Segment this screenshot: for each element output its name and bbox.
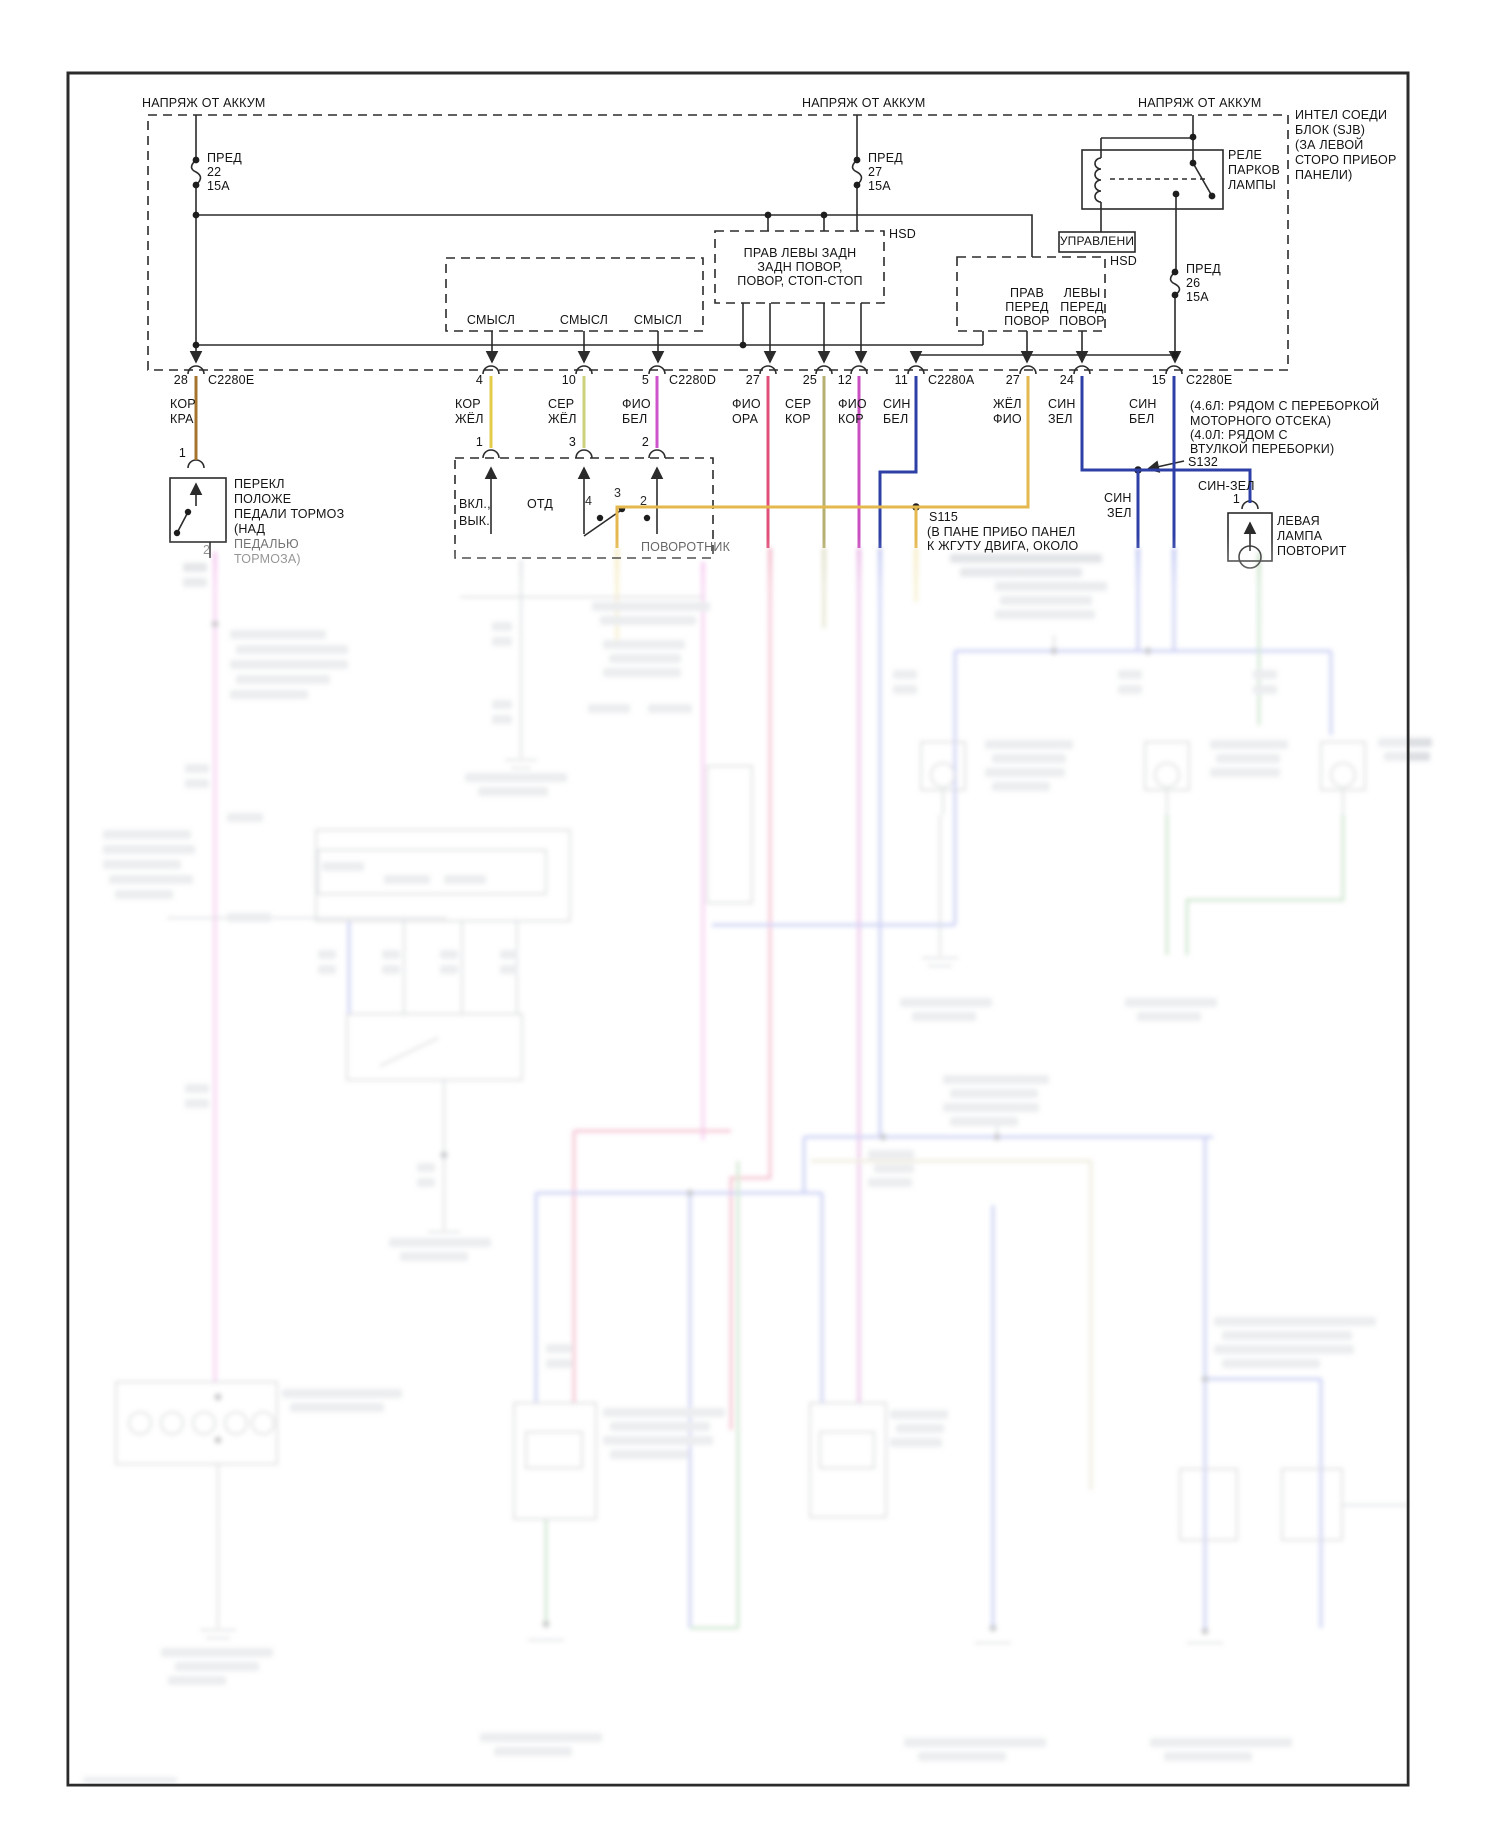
sense-label-2: СМЫСЛ — [560, 314, 608, 327]
wlbl-zhel-fio-2: ФИО — [993, 413, 1022, 426]
sin-zel-stub-1: СИН — [1104, 492, 1132, 505]
turn-contact-4: 4 — [585, 495, 592, 508]
wlbl-fio-kor-1: ФИО — [838, 398, 867, 411]
wlbl-fio-ora-2: ОРА — [732, 413, 758, 426]
lamp-name-3: ПОВТОРИТ — [1277, 545, 1347, 558]
fuse-26-symbol — [1171, 272, 1180, 295]
wlbl-kor-zhel-1: КОР — [455, 398, 481, 411]
hsd1-line-1: ПРАВ ЛЕВЫ ЗАДН — [744, 247, 857, 260]
fuse22-name: ПРЕД — [207, 152, 242, 165]
relay-name-3: ЛАМПЫ — [1228, 179, 1276, 192]
pin-11: 11 — [895, 374, 908, 387]
brake-name-5: ПЕДАЛЬЮ — [234, 538, 299, 551]
lamp-name-2: ЛАМПА — [1277, 530, 1322, 543]
conn-c2280a: C2280A — [928, 374, 974, 387]
sjb-note-4: СТОРО ПРИБОР — [1295, 154, 1397, 167]
hsd1-line-3: ПОВОР, СТОП-СТОП — [737, 275, 862, 288]
fuse22-amp: 15А — [207, 180, 230, 193]
wlbl-sin-zel-1: СИН — [1048, 398, 1076, 411]
wlbl-kor-kra-2: КРА — [170, 413, 194, 426]
hsd2-left-2: ПЕРЕД — [1005, 301, 1048, 314]
wlbl-fio-kor-2: КОР — [838, 413, 864, 426]
wlbl-fio-ora-1: ФИО — [732, 398, 761, 411]
s132-note-2: МОТОРНОГО ОТСЕКА) — [1190, 415, 1331, 428]
wlbl-ser-zhel-1: СЕР — [548, 398, 574, 411]
pin-28: 28 — [174, 374, 188, 387]
fuse27-amp: 15А — [868, 180, 891, 193]
sjb-note-1: ИНТЕЛ СОЕДИ — [1295, 109, 1387, 122]
s132-id: S132 — [1188, 456, 1218, 469]
sense-label-3: СМЫСЛ — [634, 314, 682, 327]
relay-coil — [1095, 158, 1101, 202]
fuse26-amp: 15А — [1186, 291, 1209, 304]
batt-label-right: НАПРЯЖ ОТ АККУМ — [1138, 97, 1262, 110]
hsd2-right-2: ПЕРЕД — [1060, 301, 1103, 314]
brake-pin-1: 1 — [179, 447, 186, 460]
brake-name-2: ПОЛОЖЕ — [234, 493, 291, 506]
wiring-diagram-page: НАПРЯЖ ОТ АККУМНАПРЯЖ ОТ АККУМНАПРЯЖ ОТ … — [0, 0, 1500, 1828]
wlbl-kor-zhel-2: ЖЁЛ — [455, 413, 484, 426]
pin-15: 15 — [1152, 374, 1166, 387]
turn-vyk: ВЫК. — [459, 515, 490, 528]
conn-c2280e-1: C2280E — [208, 374, 254, 387]
sense-label-1: СМЫСЛ — [467, 314, 515, 327]
fuse27-num: 27 — [868, 166, 882, 179]
hsd1-tag: HSD — [889, 228, 916, 241]
turn-contact-3: 3 — [614, 487, 621, 500]
brake-name-3: ПЕДАЛИ ТОРМОЗ — [234, 508, 344, 521]
hsd2-right-1: ЛЕВЫ — [1064, 287, 1101, 300]
s115-note-1: (В ПАНЕ ПРИБО ПАНЕЛ — [927, 526, 1075, 539]
s115-id: S115 — [929, 511, 958, 524]
colored-wires — [196, 376, 1250, 548]
pin-12: 12 — [838, 374, 852, 387]
s132-arrow — [1148, 461, 1184, 469]
wlbl-kor-kra-1: КОР — [170, 398, 196, 411]
s132-note-1: (4.6Л: РЯДОМ С ПЕРЕБОРКОЙ — [1190, 400, 1379, 413]
upravleni-label: УПРАВЛЕНИ — [1060, 235, 1134, 248]
hsd2-left-3: ПОВОР — [1004, 315, 1050, 328]
hsd1-line-2: ЗАДН ПОВОР, — [757, 261, 842, 274]
pin-10: 10 — [562, 374, 576, 387]
batt-label-mid: НАПРЯЖ ОТ АККУМ — [802, 97, 926, 110]
wlbl-sin-bel2-1: СИН — [1129, 398, 1157, 411]
pin-27b: 27 — [1006, 374, 1020, 387]
hsd2-tag: HSD — [1110, 255, 1137, 268]
brake-pin-2: 2 — [203, 544, 210, 557]
wlbl-fio-bel-2: БЕЛ — [622, 413, 647, 426]
blur-overlay — [69, 536, 1407, 1784]
fuse22-num: 22 — [207, 166, 221, 179]
brake-name-6: ТОРМОЗА) — [234, 553, 301, 566]
brake-name-1: ПЕРЕКЛ — [234, 478, 285, 491]
sjb-note-3: (ЗА ЛЕВОЙ — [1295, 139, 1364, 152]
turn-pin-2: 2 — [642, 436, 649, 449]
pin-24: 24 — [1060, 374, 1074, 387]
s115-note-2: К ЖГУТУ ДВИГА, ОКОЛО — [927, 540, 1078, 553]
wlbl-ser-kor-1: СЕР — [785, 398, 811, 411]
turn-switch-wiper — [584, 511, 620, 536]
turn-pin-3: 3 — [569, 436, 576, 449]
wlbl-sin-bel2-2: БЕЛ — [1129, 413, 1154, 426]
batt-label-left: НАПРЯЖ ОТ АККУМ — [142, 97, 266, 110]
brake-name-4: (НАД — [234, 523, 265, 536]
turn-otd: ОТД — [527, 498, 553, 511]
wlbl-sin-bel-2: БЕЛ — [883, 413, 908, 426]
pin-4: 4 — [476, 374, 483, 387]
wlbl-zhel-fio-1: ЖЁЛ — [993, 398, 1022, 411]
s132-note-3: (4.0Л: РЯДОМ С — [1190, 429, 1288, 442]
sin-zel-stub-2: ЗЕЛ — [1107, 507, 1132, 520]
relay-name-1: РЕЛЕ — [1228, 149, 1262, 162]
conn-c2280d: C2280D — [669, 374, 716, 387]
turn-name: ПОВОРОТНИК — [641, 541, 730, 554]
wlbl-ser-kor-2: КОР — [785, 413, 811, 426]
conn-c2280e-2: C2280E — [1186, 374, 1232, 387]
wlbl-sin-zel-2: ЗЕЛ — [1048, 413, 1073, 426]
hsd2-left-1: ПРАВ — [1010, 287, 1044, 300]
fuse26-num: 26 — [1186, 277, 1200, 290]
pin-25: 25 — [803, 374, 817, 387]
sin-zel-inline: СИН-ЗЕЛ — [1198, 480, 1255, 493]
lamp-name-1: ЛЕВАЯ — [1277, 515, 1320, 528]
turn-pin-1: 1 — [476, 436, 483, 449]
hsd2-right-3: ПОВОР — [1059, 315, 1105, 328]
sjb-note-2: БЛОК (SJB) — [1295, 124, 1365, 137]
fuse-22-symbol — [192, 160, 201, 185]
wlbl-ser-zhel-2: ЖЁЛ — [548, 413, 577, 426]
fuse-27-symbol — [853, 160, 862, 185]
fuse26-name: ПРЕД — [1186, 263, 1221, 276]
fuse27-name: ПРЕД — [868, 152, 903, 165]
pin-27a: 27 — [746, 374, 760, 387]
lamp-pin-1: 1 — [1233, 493, 1240, 506]
relay-name-2: ПАРКОВ — [1228, 164, 1280, 177]
wlbl-fio-bel-1: ФИО — [622, 398, 651, 411]
turn-contact-2: 2 — [640, 495, 647, 508]
pin-5: 5 — [642, 374, 649, 387]
sjb-note-5: ПАНЕЛИ) — [1295, 169, 1352, 182]
turn-vkl: ВКЛ., — [459, 498, 491, 511]
wlbl-sin-bel-1: СИН — [883, 398, 911, 411]
